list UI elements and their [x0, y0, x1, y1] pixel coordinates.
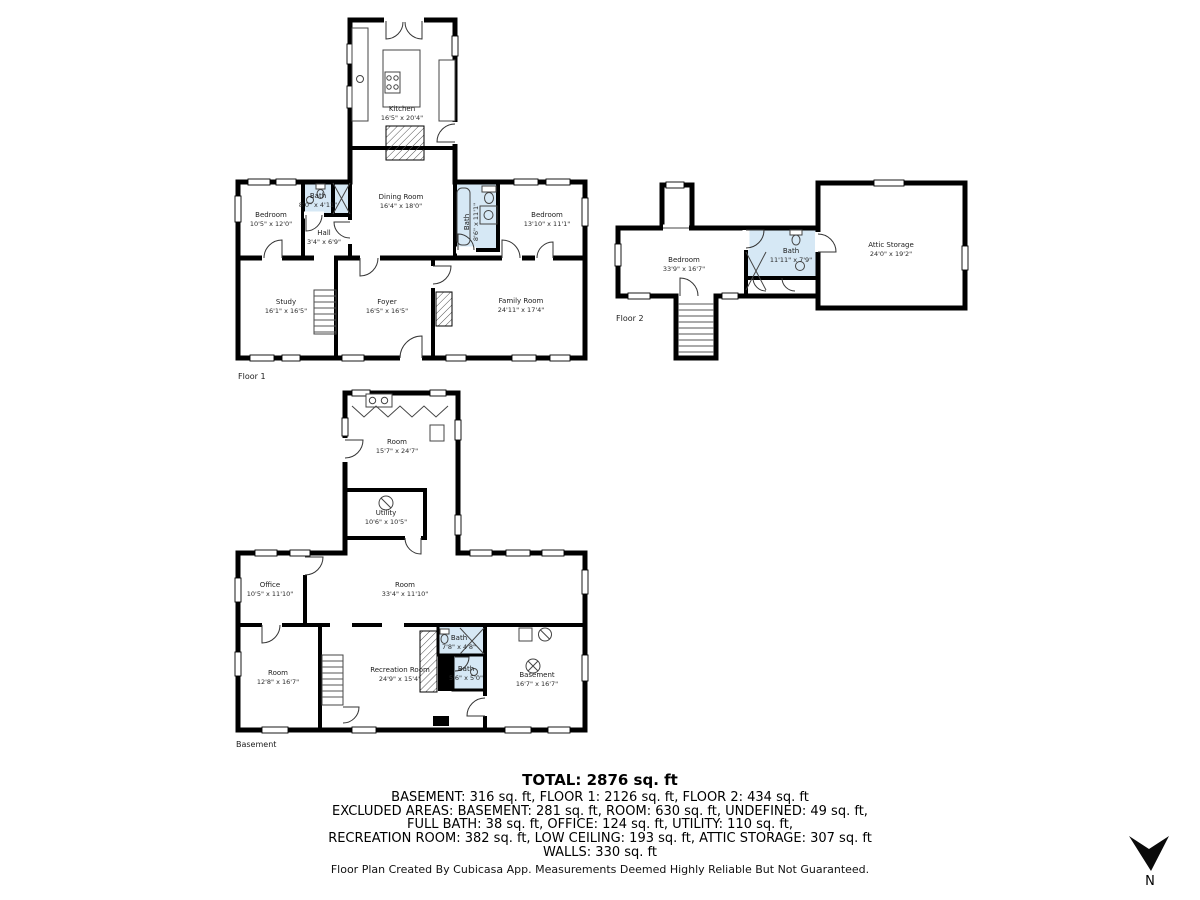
room-label-recreation-room: Recreation Room24'9" x 15'4" — [370, 666, 430, 684]
toilet-icon — [316, 184, 325, 189]
toilet-icon — [482, 186, 496, 192]
floor2-stairs — [678, 304, 714, 352]
room-label-floor2-bath: Bath11'11" x 7'9" — [770, 247, 812, 265]
floor1-stair-hatch — [386, 126, 424, 160]
excluded-areas-line2: FULL BATH: 38 sq. ft, OFFICE: 124 sq. ft… — [0, 818, 1200, 832]
room-label-basement-room-mid: Room33'4" x 11'10" — [382, 581, 428, 599]
toilet-icon — [790, 230, 802, 235]
room-label-bedroom-right: Bedroom13'10" x 11'1" — [524, 211, 570, 229]
excluded-areas-line3: RECREATION ROOM: 382 sq. ft, LOW CEILING… — [0, 832, 1200, 846]
area-summary: TOTAL: 2876 sq. ft BASEMENT: 316 sq. ft,… — [0, 771, 1200, 860]
basement-stairs — [322, 655, 343, 705]
room-label-basement-room-left: Room12'8" x 16'7" — [257, 669, 299, 687]
room-label-bath-lower: Bath5'6" x 5'0" — [449, 665, 483, 683]
total-area-line: TOTAL: 2876 sq. ft — [0, 771, 1200, 789]
room-label-kitchen: Kitchen16'5" x 20'4" — [381, 105, 423, 123]
room-label-bath-top: Bath7'8" x 4'8" — [442, 634, 476, 652]
room-label-floor2-bedroom: Bedroom33'9" x 16'7" — [663, 256, 705, 274]
basement-appliance-icons — [519, 628, 552, 673]
walls-area-line: WALLS: 330 sq. ft — [0, 846, 1200, 860]
room-label-bedroom-left: Bedroom10'5" x 12'0" — [250, 211, 292, 229]
floor-plan-canvas — [0, 0, 1200, 900]
room-label-basement-room: Basement16'7" x 16'7" — [516, 671, 558, 689]
disclaimer-text: Floor Plan Created By Cubicasa App. Meas… — [0, 863, 1200, 876]
room-label-hall: Hall3'4" x 6'9" — [307, 229, 341, 247]
room-label-study: Study16'1" x 16'5" — [265, 298, 307, 316]
excluded-areas-line1: EXCLUDED AREAS: BASEMENT: 281 sq. ft, RO… — [0, 805, 1200, 819]
room-label-family-room: Family Room24'11" x 17'4" — [498, 297, 544, 315]
basement-top-room-fixtures — [352, 394, 448, 441]
room-label-dining-room: Dining Room16'4" x 18'0" — [379, 193, 424, 211]
room-label-bath-right: Bath8'6" x 11'1" — [463, 203, 481, 241]
low-ceiling-marks — [352, 406, 448, 417]
room-label-utility: Utility10'6" x 10'5" — [365, 509, 407, 527]
kitchen-counter-right — [439, 60, 455, 121]
kitchen-island — [383, 50, 420, 107]
kitchen-counter-left — [352, 28, 368, 121]
floor2-caption: Floor 2 — [616, 314, 644, 323]
room-label-basement-room-top: Room15'7" x 24'7" — [376, 438, 418, 456]
room-label-attic-storage: Attic Storage24'0" x 19'2" — [868, 241, 914, 259]
room-label-office: Office10'5" x 11'10" — [247, 581, 293, 599]
room-label-bath-left: Bath8'0" x 4'11" — [299, 192, 337, 210]
closet-box — [430, 425, 444, 441]
basement-interior-walls — [238, 490, 585, 730]
basement-wall-stub — [433, 716, 449, 726]
basement-caption: Basement — [236, 740, 276, 749]
family-room-chimney-hatch — [436, 292, 452, 326]
room-label-foyer: Foyer16'5" x 16'5" — [366, 298, 408, 316]
floor-plan-page: Kitchen16'5" x 20'4" Bedroom10'5" x 12'0… — [0, 0, 1200, 900]
appliance-box-icon — [519, 628, 532, 641]
floor-areas-line: BASEMENT: 316 sq. ft, FLOOR 1: 2126 sq. … — [0, 791, 1200, 805]
floor1-stairs — [314, 290, 336, 334]
north-label: N — [1145, 874, 1155, 889]
utility-fixtures — [379, 496, 393, 510]
floor1-caption: Floor 1 — [238, 372, 266, 381]
